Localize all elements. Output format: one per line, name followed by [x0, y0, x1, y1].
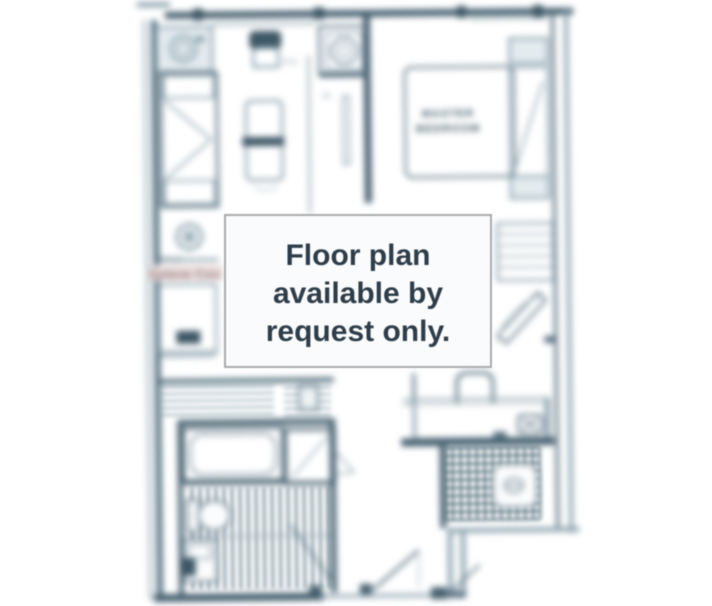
svg-text:MASTER: MASTER [422, 108, 475, 121]
svg-text:3'0: 3'0 [322, 93, 331, 100]
svg-text:9'-0: 9'-0 [283, 58, 297, 67]
svg-text:BALC: BALC [159, 255, 182, 264]
svg-text:BEDROOM: BEDROOM [416, 123, 481, 136]
svg-text:Selene Cou: Selene Cou [150, 266, 221, 282]
